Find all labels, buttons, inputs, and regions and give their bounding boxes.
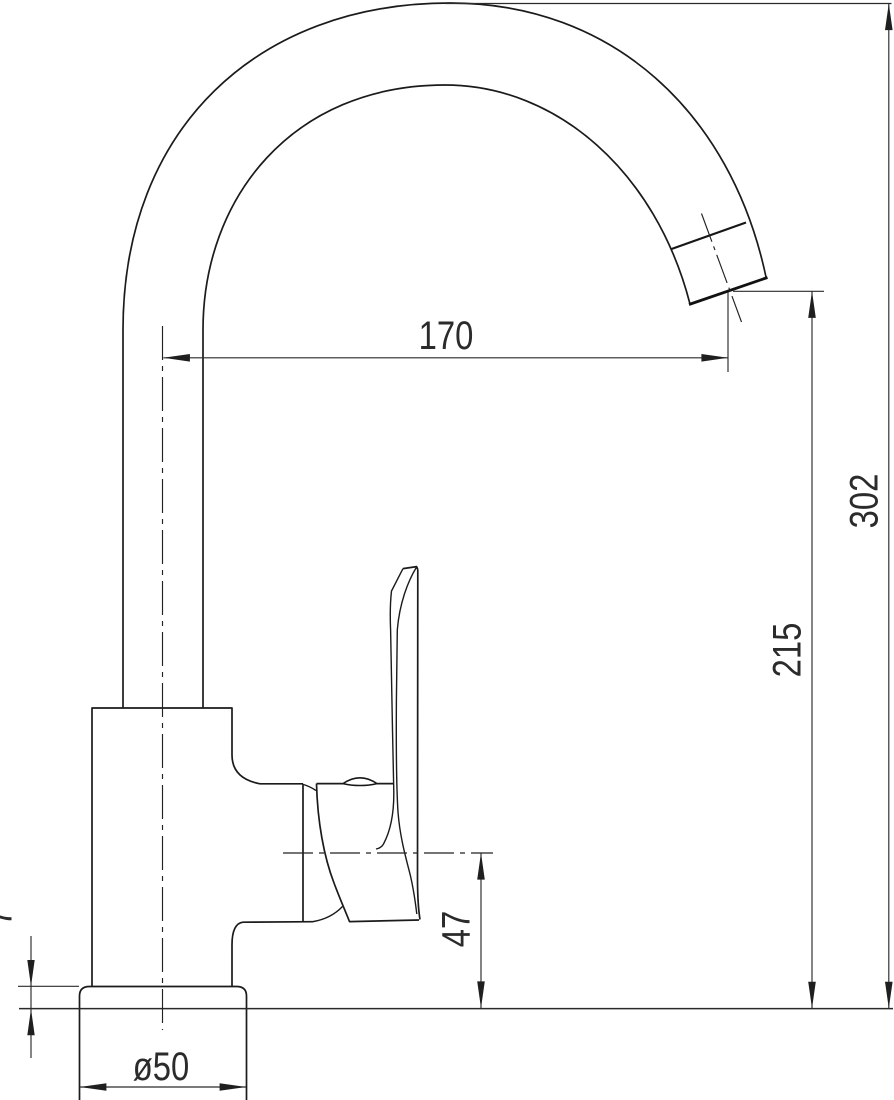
dimension-overall-height: 302 bbox=[445, 4, 892, 1009]
dimension-pivot-height: 47 bbox=[433, 853, 481, 1008]
lever-back-edge bbox=[418, 570, 421, 920]
lever-crease-line bbox=[396, 567, 417, 914]
dimension-label-spout-reach: 170 bbox=[419, 313, 474, 358]
dimension-label-overall-height: 302 bbox=[841, 474, 886, 529]
arrow-down-flange-top bbox=[27, 960, 34, 986]
handle-screw-cover bbox=[343, 778, 377, 786]
dimension-label-base-diameter: ø50 bbox=[133, 1044, 190, 1089]
faucet-body-lower-right bbox=[232, 922, 314, 987]
cartridge-neck-shoulder bbox=[304, 785, 317, 791]
cartridge-collar-arc bbox=[314, 907, 343, 922]
dimension-spout-reach: 170 bbox=[163, 292, 728, 372]
aerator-joint-line bbox=[672, 223, 747, 250]
faucet-technical-drawing-page: 170 302 215 47 7 ø50 bbox=[0, 0, 894, 1100]
spout-inner-curve bbox=[203, 85, 690, 708]
dimension-base-plate-height: 7 bbox=[0, 908, 79, 1058]
faucet-technical-drawing: 170 302 215 47 7 ø50 bbox=[0, 0, 894, 1100]
dimension-base-diameter: ø50 bbox=[80, 1044, 246, 1089]
lever-front-edge bbox=[376, 569, 403, 849]
dimension-label-pivot-height: 47 bbox=[433, 911, 478, 947]
centerline-outlet-axis bbox=[702, 214, 742, 323]
arrow-up-counter-line bbox=[27, 1009, 34, 1035]
dimension-outlet-height: 215 bbox=[733, 291, 824, 1008]
dimension-label-outlet-height: 215 bbox=[764, 623, 809, 678]
faucet-body-outline bbox=[92, 708, 303, 987]
dimension-label-base-plate-height: 7 bbox=[0, 908, 20, 926]
dimensions: 170 302 215 47 7 ø50 bbox=[0, 4, 891, 1089]
